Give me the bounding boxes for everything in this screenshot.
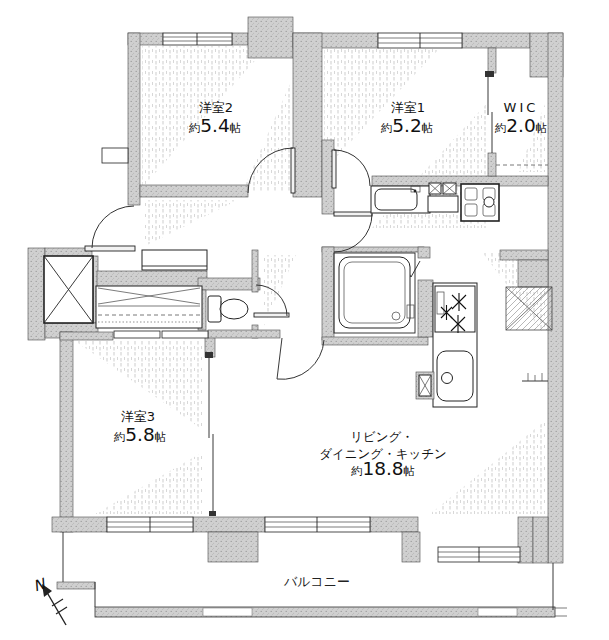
kitchen-sink: [437, 351, 473, 401]
closet-bifold-doors: [114, 331, 208, 338]
balcony: バルコニー: [57, 532, 567, 617]
svg-text:洋室1: 洋室1: [391, 100, 425, 115]
stove: [435, 286, 475, 333]
bathtub: [334, 253, 415, 333]
bedroom1-door: [332, 150, 370, 188]
window-living: [265, 517, 370, 532]
svg-text:リビング・: リビング・: [350, 429, 414, 444]
balcony-label: バルコニー: [283, 574, 350, 589]
shoe-cabinet: [142, 250, 207, 270]
svg-text:WIC: WIC: [504, 100, 539, 115]
hall-closet: [96, 286, 202, 328]
washroom-door: [334, 212, 372, 252]
svg-text:約18.8帖: 約18.8帖: [351, 458, 415, 479]
living-door: [277, 338, 324, 379]
svg-text:約2.0帖: 約2.0帖: [495, 115, 547, 136]
top-pillar: [248, 17, 293, 58]
window-living-bay: [438, 547, 520, 562]
pipe-space-boxes: [428, 183, 458, 212]
window-bedroom1: [378, 33, 462, 48]
toilet: [208, 296, 248, 322]
svg-text:洋室3: 洋室3: [121, 409, 155, 424]
bedroom3-label: 洋室3 約5.8帖: [114, 409, 166, 445]
wic-label: WIC 約2.0帖: [495, 100, 547, 136]
north-label: N: [31, 575, 49, 596]
ldk-label: リビング・ ダイニング・キッチン 約18.8帖: [319, 429, 447, 479]
meter-box: [102, 148, 128, 163]
kitchen-counter: [433, 283, 477, 407]
bedroom1-label: 洋室1 約5.2帖: [381, 100, 433, 136]
floor-plan-drawing: バルコニー N 洋室2 約5.4帖 洋室1 約5.2帖 WIC 約2.0帖 洋室…: [0, 0, 609, 640]
washer-pan: [461, 184, 499, 221]
kitchen-pipe-space: [416, 372, 434, 399]
window-bedroom2: [163, 33, 232, 45]
svg-text:約5.8帖: 約5.8帖: [114, 424, 166, 445]
bedroom3-sliding-door: [205, 352, 216, 516]
floor-plan-page: バルコニー N 洋室2 約5.4帖 洋室1 約5.2帖 WIC 約2.0帖 洋室…: [0, 0, 609, 640]
balcony-pillar-left: [402, 532, 420, 562]
left-outer-wall: [128, 33, 140, 205]
elevator-shaft: [44, 256, 93, 323]
window-bedroom3: [107, 517, 193, 532]
counter-niche: [522, 373, 548, 381]
svg-text:洋室2: 洋室2: [199, 100, 233, 115]
svg-text:約5.2帖: 約5.2帖: [381, 115, 433, 136]
entrance-door: [85, 206, 135, 251]
refrigerator-space: [506, 287, 552, 330]
washbasin: [371, 186, 430, 213]
balcony-pillar-mid: [208, 532, 258, 562]
